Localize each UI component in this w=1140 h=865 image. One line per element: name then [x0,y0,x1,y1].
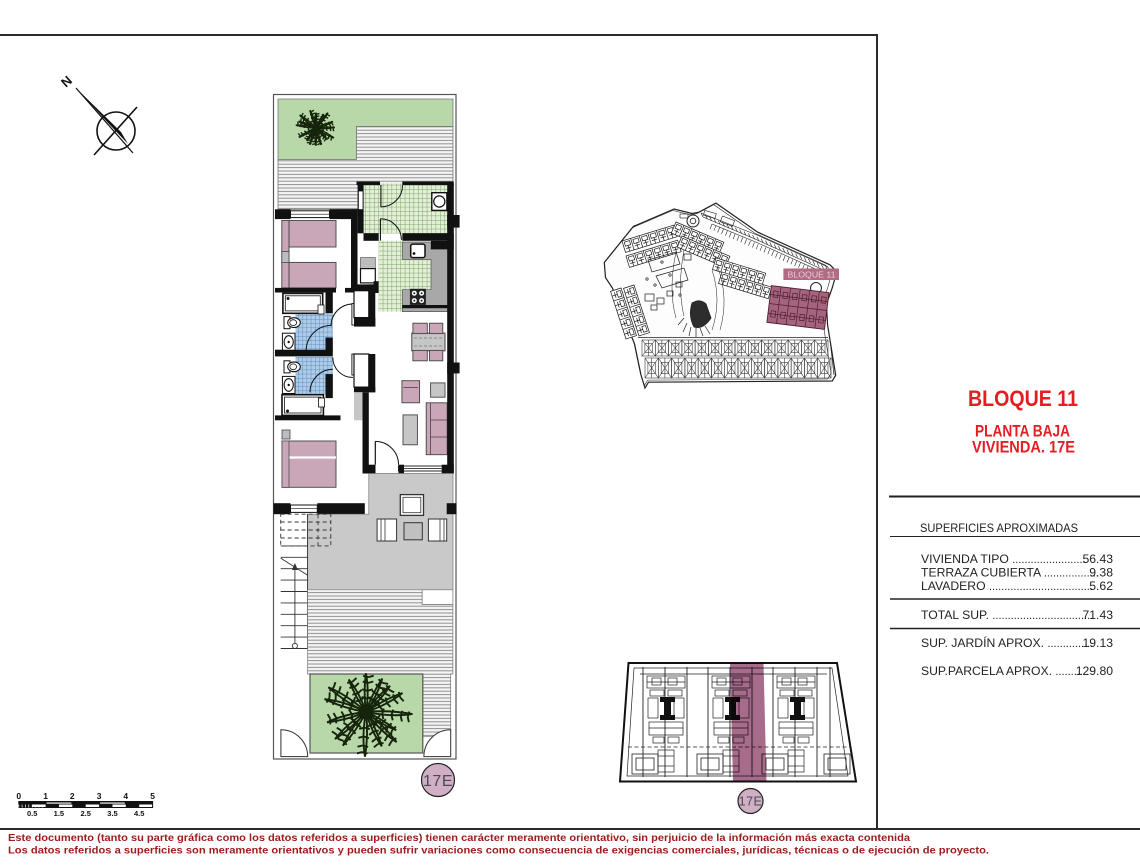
svg-text:5: 5 [150,791,155,801]
svg-text:0.5: 0.5 [27,809,37,818]
svg-text:LAVADERO .....................: LAVADERO ...............................… [921,579,1093,593]
svg-text:4.5: 4.5 [134,809,144,818]
svg-text:2.5: 2.5 [80,809,90,818]
svg-text:2: 2 [70,791,75,801]
svg-text:129.80: 129.80 [1076,664,1113,678]
svg-text:71.43: 71.43 [1083,608,1114,622]
svg-text:TOTAL SUP. ...................: TOTAL SUP. .............................… [921,608,1093,622]
svg-text:17E: 17E [423,773,453,790]
svg-text:17E: 17E [739,795,763,809]
svg-text:3: 3 [97,791,102,801]
svg-text:1: 1 [43,791,48,801]
svg-text:4: 4 [123,791,128,801]
svg-text:9.38: 9.38 [1089,566,1113,580]
svg-text:5.62: 5.62 [1089,579,1113,593]
svg-text:0: 0 [16,791,21,801]
svg-text:SUP.PARCELA APROX. ...........: SUP.PARCELA APROX. ........... [921,664,1089,678]
svg-text:VIVIENDA TIPO ................: VIVIENDA TIPO ........................ [921,552,1086,566]
svg-text:BLOQUE 11: BLOQUE 11 [968,386,1078,411]
svg-text:Los datos referidos a superfic: Los datos referidos a superficies son me… [8,845,989,857]
svg-text:19.13: 19.13 [1083,636,1114,650]
svg-text:SUP. JARDÍN APROX. ...........: SUP. JARDÍN APROX. ............... [921,635,1093,650]
svg-text:1.5: 1.5 [54,809,64,818]
svg-text:TERRAZA CUBIERTA .............: TERRAZA CUBIERTA .................. [921,566,1099,580]
svg-text:3.5: 3.5 [107,809,117,818]
svg-text:VIVIENDA. 17E: VIVIENDA. 17E [972,438,1075,457]
svg-text:SUPERFICIES APROXIMADAS: SUPERFICIES APROXIMADAS [920,521,1078,535]
svg-text:56.43: 56.43 [1083,552,1114,566]
svg-text:Este documento (tanto su parte: Este documento (tanto su parte gráfica c… [8,832,910,844]
svg-text:BLOQUE 11: BLOQUE 11 [788,270,836,280]
